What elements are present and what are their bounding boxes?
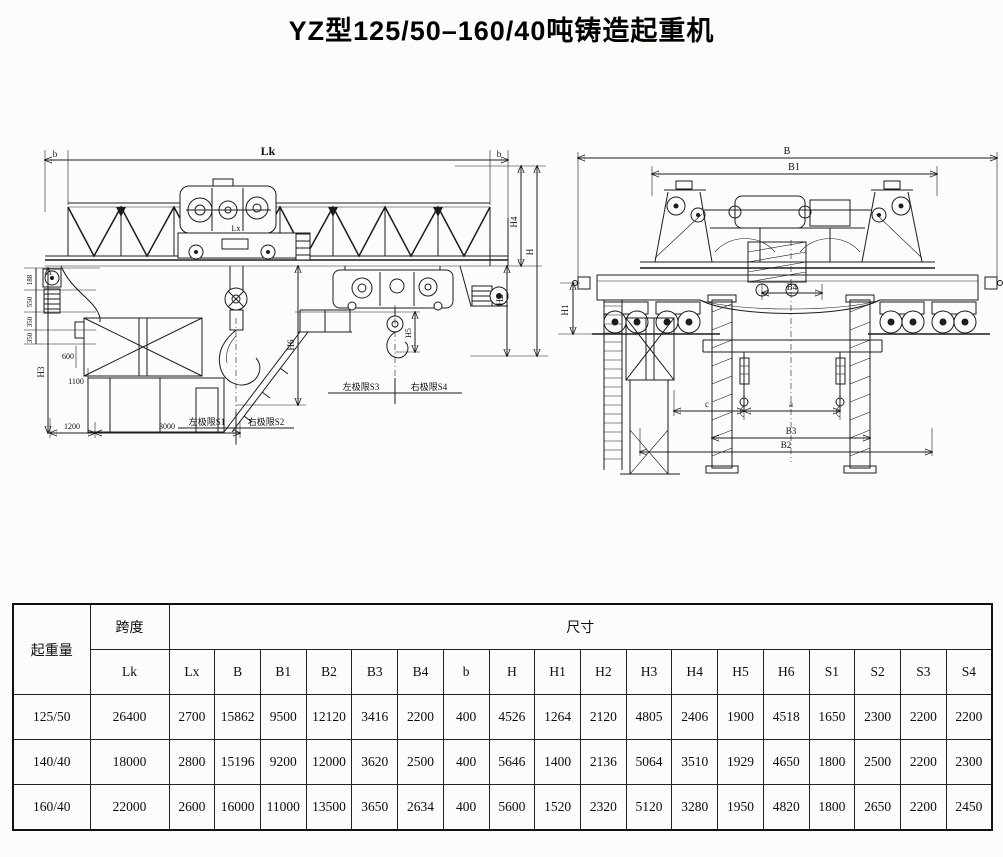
dim-h5-label: H5 [404, 328, 413, 338]
dim-1200-label: 1200 [64, 422, 80, 431]
table-cell: 4518 [763, 695, 809, 740]
header-col: H3 [626, 650, 672, 695]
spec-table-section: 起重量 跨度 尺寸 Lk Lx B B1 B2 B3 B4 b H H1 H2 … [12, 603, 993, 831]
dim-188-label: 188 [26, 274, 34, 285]
table-cell: 2406 [672, 695, 718, 740]
engineering-drawing: Lk b b Lx [0, 140, 1003, 500]
dim-h6-label: H6 [286, 339, 296, 350]
table-cell: 2300 [855, 695, 901, 740]
header-col: H6 [763, 650, 809, 695]
table-cell: 12120 [306, 695, 352, 740]
cell-capacity: 125/50 [13, 695, 90, 740]
table-cell: 3416 [352, 695, 398, 740]
table-cell: 2634 [398, 785, 444, 831]
dim-550-label: 550 [26, 296, 34, 307]
table-cell: 5064 [626, 740, 672, 785]
dim-h2-label: H2 [495, 295, 505, 306]
table-cell: 2120 [580, 695, 626, 740]
header-col: S3 [901, 650, 947, 695]
header-col: S2 [855, 650, 901, 695]
table-cell: 1900 [718, 695, 764, 740]
dim-3000-label: 3000 [159, 422, 175, 431]
table-cell: 4805 [626, 695, 672, 740]
cell-lk: 22000 [90, 785, 169, 831]
table-cell: 3510 [672, 740, 718, 785]
header-span-sub: Lk [90, 650, 169, 695]
table-cell: 2200 [901, 785, 947, 831]
cell-capacity: 140/40 [13, 740, 90, 785]
dim-h-label: H [525, 248, 535, 255]
dim-h3-label: H3 [36, 366, 46, 377]
table-row: 160/40 22000 2600 16000 11000 13500 3650… [13, 785, 992, 831]
dim-b-right-label: b [497, 149, 502, 159]
table-header-row-2: Lk Lx B B1 B2 B3 B4 b H H1 H2 H3 H4 H5 H… [13, 650, 992, 695]
table-row: 140/40 18000 2800 15196 9200 12000 3620 … [13, 740, 992, 785]
dim-c-label: c [705, 399, 709, 409]
header-col: Lx [169, 650, 215, 695]
dim-lx-label: Lx [232, 224, 241, 233]
page-title: YZ型125/50–160/40吨铸造起重机 [0, 9, 1003, 48]
limit-s3-label: 左极限S3 [343, 381, 380, 392]
header-col: H1 [535, 650, 581, 695]
table-cell: 4526 [489, 695, 535, 740]
table-cell: 2200 [901, 740, 947, 785]
table-cell: 1950 [718, 785, 764, 831]
header-size: 尺寸 [169, 604, 992, 650]
dim-b4-label: B4 [787, 282, 798, 292]
table-cell: 400 [443, 785, 489, 831]
cell-lk: 18000 [90, 740, 169, 785]
cell-capacity: 160/40 [13, 785, 90, 831]
dim-350b-label: 350 [26, 332, 34, 343]
header-col: S4 [946, 650, 992, 695]
header-col: B2 [306, 650, 352, 695]
dim-600-label: 600 [62, 352, 74, 361]
limit-s1-label: 左极限S1 [189, 416, 226, 427]
dim-350a-label: 350 [26, 316, 34, 327]
table-cell: 3650 [352, 785, 398, 831]
table-cell: 1264 [535, 695, 581, 740]
table-cell: 1400 [535, 740, 581, 785]
limit-s4-label: 右极限S4 [411, 381, 448, 392]
table-cell: 9200 [260, 740, 306, 785]
dim-1100-label: 1100 [68, 377, 84, 386]
catalog-page: { "page": { "title": "YZ型125/50–160/40吨铸… [0, 0, 1003, 857]
table-cell: 3620 [352, 740, 398, 785]
table-cell: 5120 [626, 785, 672, 831]
header-col: b [443, 650, 489, 695]
table-cell: 2200 [901, 695, 947, 740]
header-col: S1 [809, 650, 855, 695]
table-row: 125/50 26400 2700 15862 9500 12120 3416 … [13, 695, 992, 740]
table-header-row-1: 起重量 跨度 尺寸 [13, 604, 992, 650]
table-cell: 5600 [489, 785, 535, 831]
end-view-drawing: B B1 [558, 146, 1003, 474]
side-view-drawing: Lk b b Lx [24, 144, 548, 446]
dim-b3-label: B3 [786, 426, 797, 436]
header-capacity: 起重量 [13, 604, 90, 695]
table-cell: 2800 [169, 740, 215, 785]
dim-b-label: B [784, 146, 791, 157]
table-cell: 2450 [946, 785, 992, 831]
dim-a-label: a [789, 399, 793, 409]
header-col: H5 [718, 650, 764, 695]
table-cell: 11000 [260, 785, 306, 831]
table-cell: 4650 [763, 740, 809, 785]
table-cell: 15196 [215, 740, 261, 785]
header-col: H [489, 650, 535, 695]
header-col: B [215, 650, 261, 695]
header-col: B1 [260, 650, 306, 695]
table-cell: 13500 [306, 785, 352, 831]
table-cell: 2136 [580, 740, 626, 785]
table-cell: 2500 [398, 740, 444, 785]
header-col: B4 [398, 650, 444, 695]
header-col: B3 [352, 650, 398, 695]
header-col: H4 [672, 650, 718, 695]
table-cell: 15862 [215, 695, 261, 740]
table-cell: 1800 [809, 740, 855, 785]
table-cell: 4820 [763, 785, 809, 831]
table-cell: 2650 [855, 785, 901, 831]
dim-h4-label: H4 [509, 216, 519, 227]
table-cell: 1650 [809, 695, 855, 740]
table-cell: 2300 [946, 740, 992, 785]
table-cell: 400 [443, 695, 489, 740]
table-cell: 9500 [260, 695, 306, 740]
table-cell: 16000 [215, 785, 261, 831]
table-cell: 3280 [672, 785, 718, 831]
header-col: H2 [580, 650, 626, 695]
header-span: 跨度 [90, 604, 169, 650]
table-cell: 1800 [809, 785, 855, 831]
dim-lk-label: Lk [261, 144, 276, 158]
table-cell: 2500 [855, 740, 901, 785]
cell-lk: 26400 [90, 695, 169, 740]
dim-b2-label: B2 [781, 440, 792, 450]
table-cell: 2320 [580, 785, 626, 831]
table-cell: 400 [443, 740, 489, 785]
dim-b-left-label: b [53, 149, 58, 159]
dimension-table: 起重量 跨度 尺寸 Lk Lx B B1 B2 B3 B4 b H H1 H2 … [12, 603, 993, 831]
table-cell: 5646 [489, 740, 535, 785]
dim-h1-label: H1 [560, 305, 570, 316]
table-cell: 2200 [398, 695, 444, 740]
table-cell: 2200 [946, 695, 992, 740]
table-cell: 2700 [169, 695, 215, 740]
dim-b1-label: B1 [788, 162, 800, 173]
table-cell: 12000 [306, 740, 352, 785]
table-cell: 1929 [718, 740, 764, 785]
limit-s2-label: 右极限S2 [248, 416, 285, 427]
table-cell: 1520 [535, 785, 581, 831]
table-cell: 2600 [169, 785, 215, 831]
